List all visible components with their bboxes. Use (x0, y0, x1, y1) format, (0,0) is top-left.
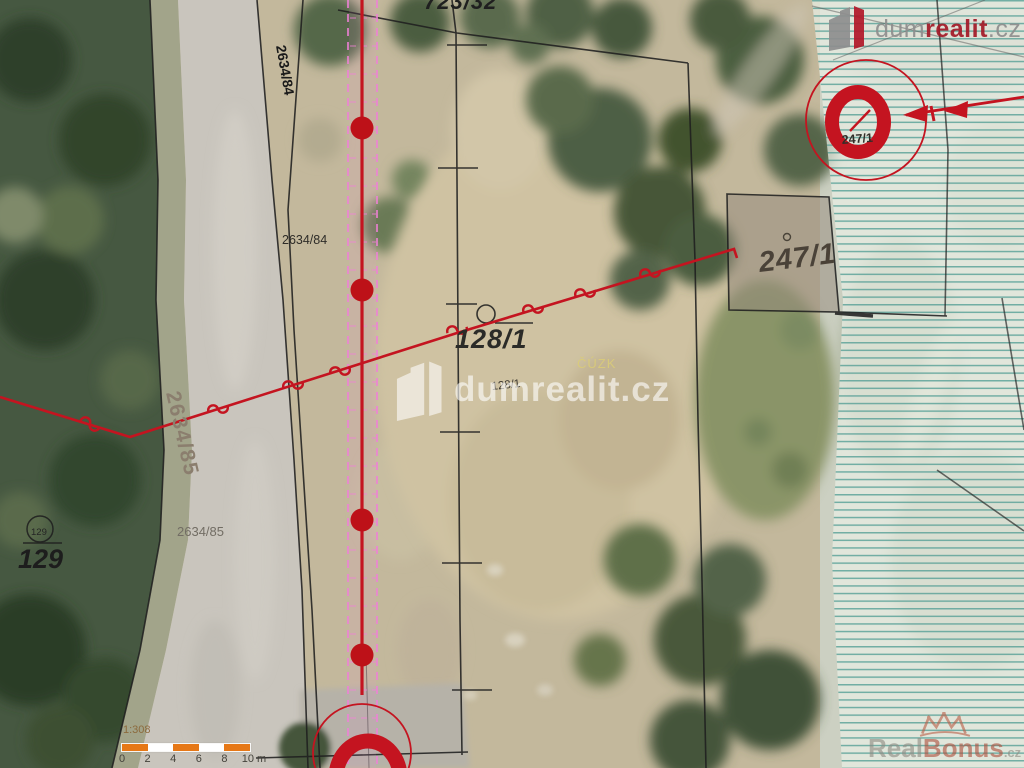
scale-segment (199, 744, 225, 751)
scale-tick-10m: 10 m (242, 753, 266, 765)
scale-tick-4: 4 (170, 753, 176, 765)
dumrealit-logo: dumrealit.cz (826, 5, 1021, 53)
label-parcel-129-tiny: 129 (31, 527, 47, 538)
realbonus-watermark: RealBonus.cz (868, 712, 1021, 763)
label-parcel-128-1: 128/1 (455, 324, 528, 354)
scale-segment (122, 744, 148, 751)
scale-bar-segments (122, 744, 250, 751)
scale-tick-8: 8 (221, 753, 227, 765)
cadastral-map-screenshot: 723/32 2634/84 2634/84 2634/85 2634/85 1… (0, 0, 1024, 768)
realbonus-text: RealBonus.cz (868, 738, 1021, 763)
scale-segment (148, 744, 174, 751)
dumrealit-watermark-text: dumrealit.cz (454, 370, 670, 410)
logo-text-realit: realit (925, 15, 988, 43)
scale-segment (173, 744, 199, 751)
scale-tick-labels: 0 2 4 6 8 10 m (122, 753, 250, 767)
dumrealit-logo-text: dumrealit.cz (875, 15, 1021, 44)
logo-text-cz: .cz (988, 15, 1021, 43)
logo-text-dum: dum (875, 15, 925, 43)
scale-bar: 1:308 0 2 4 6 8 10 m (118, 724, 268, 768)
label-parcel-723-32: 723/32 (424, 0, 497, 14)
realbonus-text-cz: .cz (1004, 745, 1021, 760)
scale-segment (224, 744, 250, 751)
scale-tick-2: 2 (145, 753, 151, 765)
realbonus-text-real: Real (868, 733, 923, 763)
dumrealit-logo-icon (826, 5, 868, 53)
realbonus-text-bonus: Bonus (923, 733, 1004, 763)
label-parcel-129: 129 (18, 544, 63, 574)
scale-tick-6: 6 (196, 753, 202, 765)
dumrealit-watermark-center: dumrealit.cz (392, 358, 670, 422)
scale-ratio: 1:308 (123, 724, 151, 736)
label-parcel-2634-84: 2634/84 (282, 233, 327, 247)
scale-tick-0: 0 (119, 753, 125, 765)
label-parcel-247-1-marker: 247/1 (841, 131, 873, 147)
dumrealit-watermark-icon (392, 358, 444, 422)
label-parcel-2634-85: 2634/85 (177, 524, 224, 539)
